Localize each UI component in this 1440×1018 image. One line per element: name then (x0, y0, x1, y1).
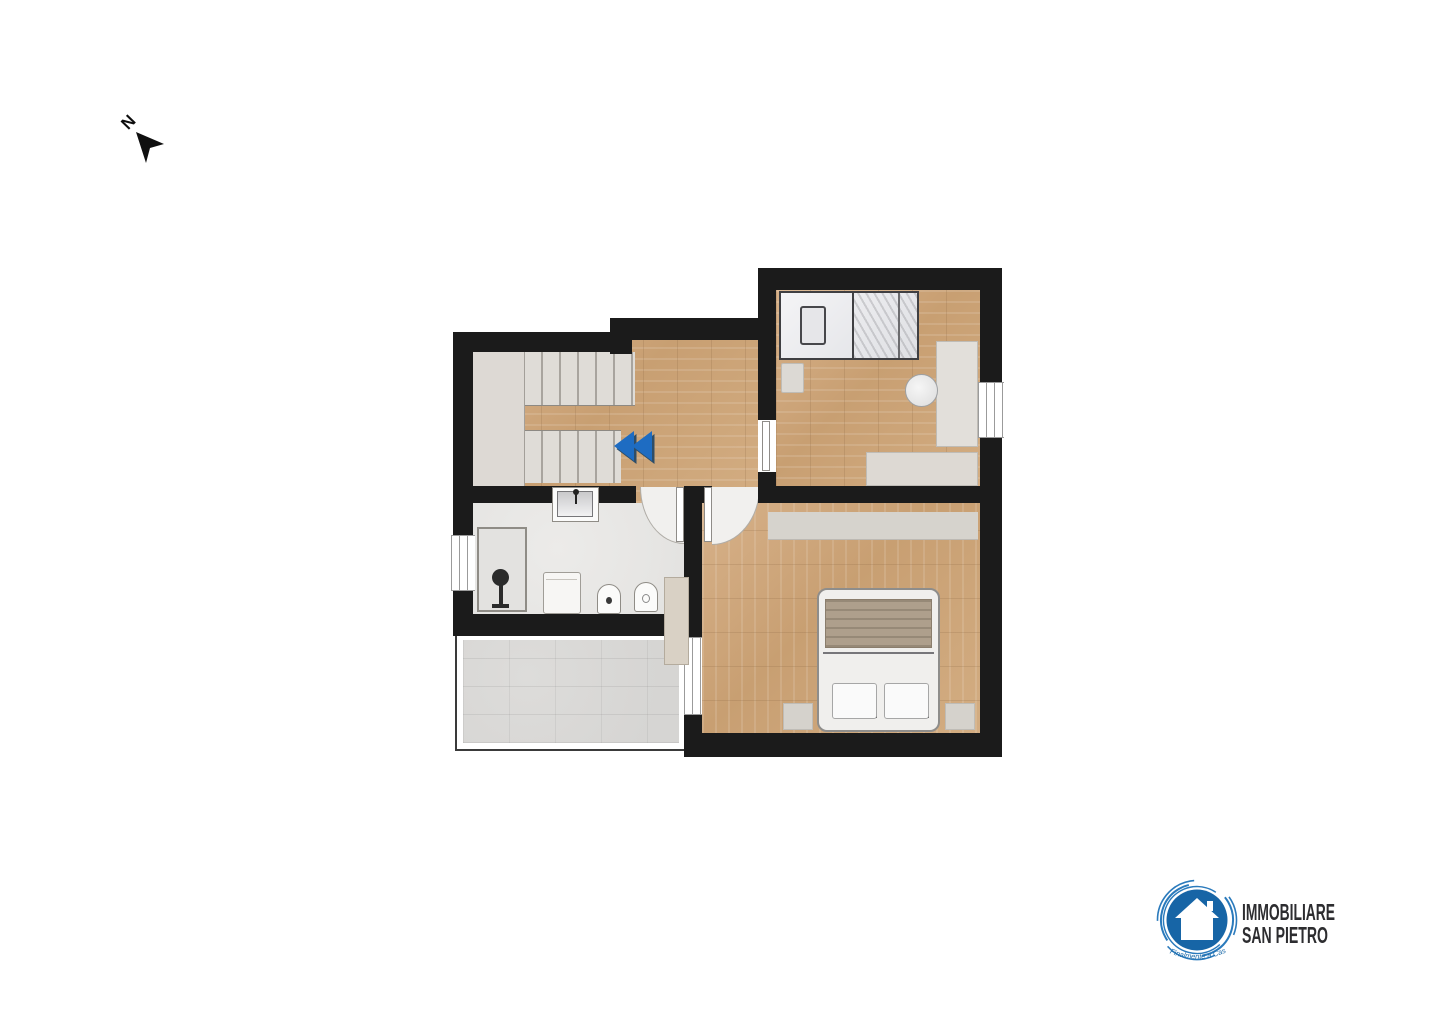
wall-small-bedroom-left-upper (758, 282, 776, 422)
faucet-stem (575, 494, 577, 504)
toilet-bowl-line (642, 594, 650, 603)
stairs-direction-arrow-icon (612, 429, 658, 467)
shower (477, 527, 527, 612)
logo-mark-icon: Finalmente a Casa (1155, 876, 1246, 969)
bed-divider-line (852, 293, 854, 358)
bidet-drain (606, 597, 612, 604)
single-bed (779, 291, 919, 360)
sink (552, 487, 599, 522)
small-bedroom-nightstand (781, 363, 804, 393)
duvet (825, 599, 932, 648)
bed-mattress-texture (854, 293, 917, 358)
wall-divider-west (453, 486, 636, 503)
wall-bathroom-bottom (453, 614, 688, 636)
shower-fixture-base (492, 604, 509, 608)
small-bedroom-door-leaf (762, 421, 770, 471)
wall-bottom-master (684, 733, 1002, 757)
shelf (866, 452, 978, 486)
terrace-tiles (463, 640, 679, 743)
wall-right (980, 268, 1002, 757)
staircase-lower-flight (525, 430, 621, 483)
logo: Finalmente a Casa IMMOBILIARE SAN PIETRO (1155, 876, 1365, 972)
wall-top-hallway (610, 318, 762, 340)
toilet (634, 582, 658, 612)
storage-cabinet (664, 577, 689, 665)
staircase-upper-flight (525, 352, 635, 406)
wall-master-left-lower (684, 714, 702, 757)
bathroom-door-leaf (676, 487, 684, 542)
logo-text: IMMOBILIARE SAN PIETRO (1242, 899, 1335, 948)
pillow-right (884, 683, 929, 719)
desk-chair (905, 374, 938, 407)
wall-top-small-bedroom (758, 268, 1002, 290)
floor-plan-page: N (0, 0, 1440, 1018)
staircase-landing (473, 352, 525, 486)
washing-machine-lid-line (546, 579, 577, 580)
master-nightstand-right (945, 703, 975, 730)
bed-divider-line-2 (898, 293, 900, 358)
wall-divider-east (760, 486, 1002, 503)
bidet (597, 584, 621, 614)
terrace (455, 634, 687, 751)
floor-plan (0, 0, 1440, 1018)
shower-fixture-icon (492, 569, 509, 586)
wardrobe (768, 512, 978, 540)
desk (936, 341, 978, 447)
pillow-left (832, 683, 877, 719)
washing-machine (543, 572, 581, 614)
master-bedroom-door-leaf (704, 487, 712, 542)
master-nightstand-left (783, 703, 813, 730)
window-bathroom (451, 535, 475, 591)
wall-top-stairwell (453, 332, 632, 352)
double-bed (817, 588, 940, 732)
bed-frame-line (823, 652, 934, 654)
window-small-bedroom (978, 382, 1004, 438)
bed-pillow (800, 306, 826, 345)
logo-line2: SAN PIETRO (1242, 922, 1328, 948)
